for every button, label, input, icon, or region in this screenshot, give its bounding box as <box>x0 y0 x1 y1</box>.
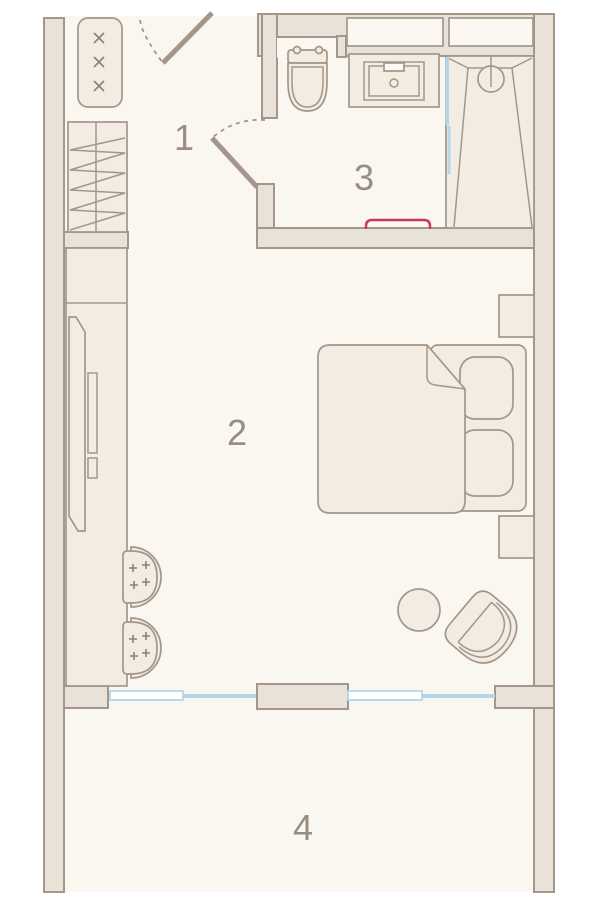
toilet-hinge-left <box>294 47 301 54</box>
double-bed <box>318 345 526 513</box>
ventilation-shaft-1 <box>347 18 443 46</box>
shower <box>446 56 535 228</box>
tall-cabinet <box>66 248 127 686</box>
closet-top-wall <box>64 232 128 248</box>
toilet <box>288 47 327 112</box>
left-exterior-wall <box>44 18 64 892</box>
ventilation-shaft-2 <box>449 18 533 46</box>
blanket <box>318 345 465 513</box>
balcony-sliding-panel <box>257 684 348 709</box>
right-exterior-wall <box>534 14 554 892</box>
room-label-4: 4 <box>293 807 313 848</box>
room-label-1: 1 <box>174 117 194 158</box>
entry-wardrobe <box>68 122 127 232</box>
room-label-2: 2 <box>227 412 247 453</box>
tv-panel <box>69 317 85 531</box>
chair-seat <box>123 622 157 674</box>
bathroom-door-jamb-wall <box>257 184 274 230</box>
faucet <box>384 63 404 71</box>
radiator <box>78 18 122 107</box>
side-table <box>398 589 440 631</box>
balcony-glass-left <box>183 694 258 698</box>
pillow-1 <box>460 357 513 419</box>
sink-vanity <box>349 54 439 107</box>
balcony-glass-right <box>422 694 495 698</box>
balcony-pier-left <box>64 686 108 708</box>
toilet-niche-stub-wall <box>337 36 346 57</box>
room-label-3: 3 <box>354 157 374 198</box>
floorplan-svg: 1 2 3 4 <box>0 0 606 906</box>
chair-seat <box>123 551 157 603</box>
balcony-window-frame-right <box>348 691 422 700</box>
balcony-pier-right <box>495 686 554 708</box>
shower-glass-panel-1 <box>446 57 450 125</box>
toilet-hinge-right <box>316 47 323 54</box>
shower-glass-panel-2 <box>448 126 451 174</box>
toilet-bowl <box>288 63 327 111</box>
floorplan: 1 2 3 4 <box>0 0 606 906</box>
nightstand-2 <box>499 516 534 558</box>
pillow-2 <box>460 430 513 496</box>
balcony-window-frame-left <box>110 691 183 700</box>
bathroom-bottom-wall <box>257 228 554 248</box>
nightstand-1 <box>499 295 534 337</box>
bathroom-left-wall <box>262 14 277 118</box>
